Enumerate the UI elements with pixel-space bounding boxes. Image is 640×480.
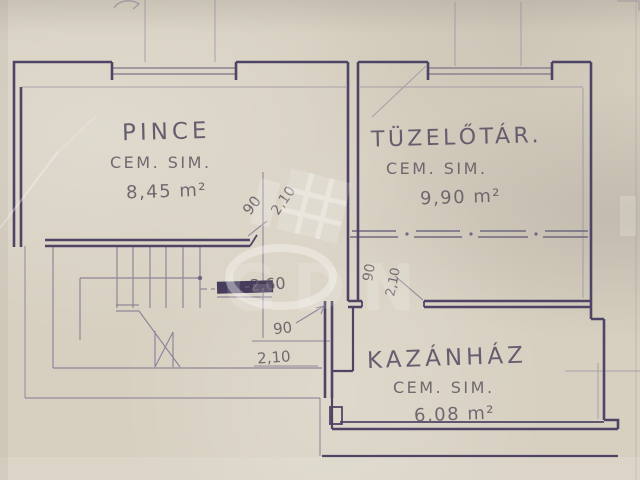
pencil-squiggle — [114, 1, 139, 9]
watermark-text: GDN — [224, 252, 431, 326]
stair-landing-step — [116, 305, 139, 311]
pince-bottom-wall — [45, 240, 250, 246]
room-finish-tuzelotar: CEM. SIM. — [386, 159, 488, 178]
room-label-tuzelotar: TÜZELŐTÁR. — [370, 122, 543, 152]
floor-plan-photo: PINCE CEM. SIM. 8,45 m² TÜZELŐTÁR. CEM. … — [0, 0, 640, 480]
room-area-kazanhaz: 6,08 m² — [414, 403, 496, 427]
windows — [112, 68, 552, 74]
stair-break-line — [139, 311, 180, 367]
kazanhaz-door-height: 2,10 — [257, 347, 292, 367]
room-finish-kazanhaz: CEM. SIM. — [393, 378, 495, 397]
window-jambs — [112, 62, 552, 80]
chute-diagonal — [372, 66, 426, 117]
room-label-pince: PINCE — [122, 118, 211, 146]
room-area-pince: 8,45 m² — [126, 180, 208, 204]
watermark-logo-blocks — [250, 162, 352, 245]
window-left — [112, 68, 236, 74]
window-right — [428, 68, 552, 74]
stair-newel-dot — [198, 276, 202, 280]
room-finish-pince: CEM. SIM. — [110, 153, 212, 172]
fuel-storage-marks — [350, 231, 588, 237]
room-label-kazanhaz: KAZÁNHÁZ — [367, 340, 528, 374]
floor-plan-svg: PINCE CEM. SIM. 8,45 m² TÜZELŐTÁR. CEM. … — [0, 0, 640, 480]
watermark-fragment — [620, 196, 636, 236]
stair-steps — [117, 246, 200, 308]
room-area-tuzelotar: 9,90 m² — [420, 186, 502, 210]
